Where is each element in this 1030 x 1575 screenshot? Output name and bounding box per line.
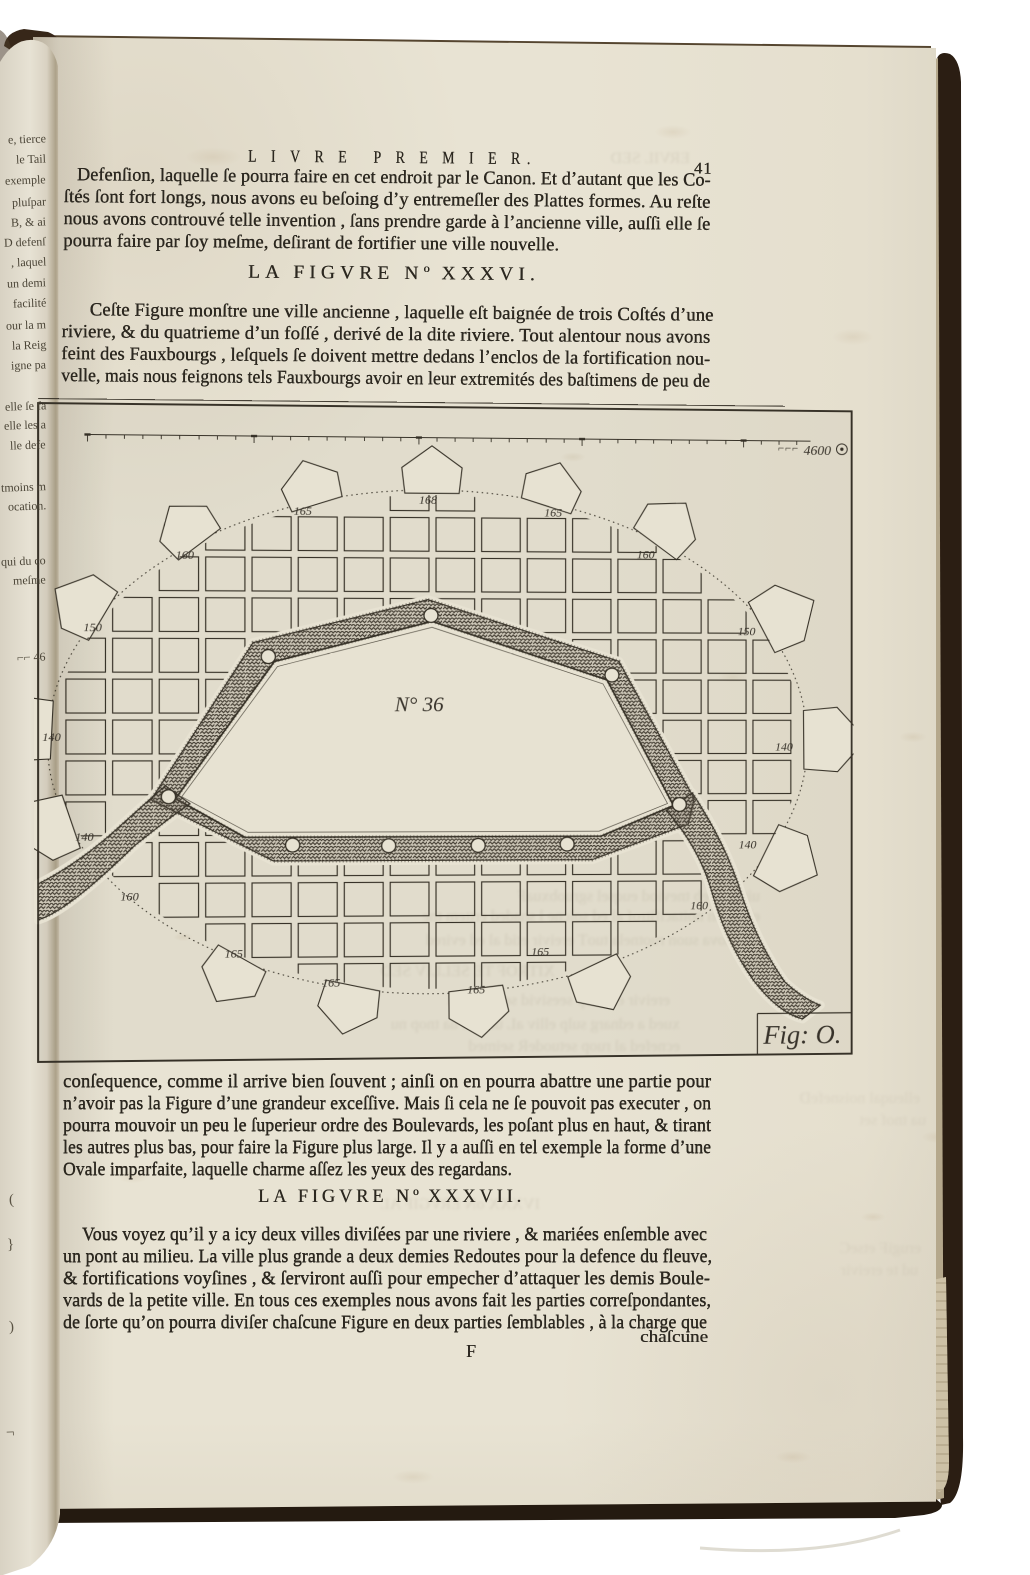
svg-text:140: 140 — [42, 730, 61, 744]
svg-text:N° 36: N° 36 — [394, 693, 444, 716]
svg-text:165: 165 — [225, 947, 243, 961]
svg-text:165: 165 — [294, 504, 312, 518]
svg-text:160: 160 — [637, 548, 655, 562]
svg-text:140: 140 — [775, 740, 793, 753]
svg-text:165: 165 — [531, 945, 549, 959]
svg-text:160: 160 — [690, 899, 708, 913]
svg-text:140: 140 — [739, 838, 757, 852]
svg-text:140: 140 — [75, 830, 93, 844]
svg-text:Fig: O.: Fig: O. — [762, 1020, 841, 1050]
svg-text:165: 165 — [467, 983, 485, 997]
svg-text:150: 150 — [83, 620, 101, 634]
svg-text:160: 160 — [176, 548, 194, 562]
svg-text:⌐ ⌐ ⌐: ⌐ ⌐ ⌐ — [778, 443, 798, 455]
svg-text:150: 150 — [738, 625, 756, 639]
svg-text:160: 160 — [120, 890, 138, 904]
svg-text:168: 168 — [419, 493, 437, 507]
svg-text:165: 165 — [544, 506, 562, 520]
svg-text:4600: 4600 — [804, 443, 831, 459]
svg-text:165: 165 — [322, 976, 340, 990]
